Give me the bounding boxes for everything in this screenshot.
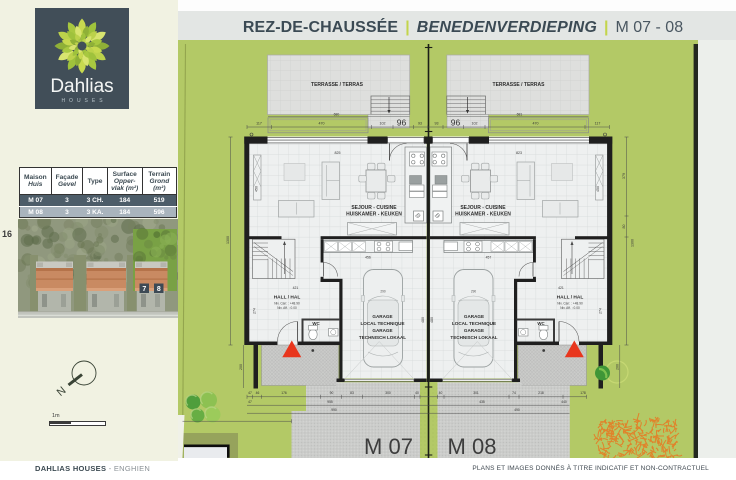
svg-text:HUISKAMER - KEUKEN: HUISKAMER - KEUKEN (455, 212, 511, 218)
svg-text:SEJOUR - CUISINE: SEJOUR - CUISINE (460, 205, 506, 211)
svg-text:456: 456 (365, 255, 371, 259)
svg-text:83: 83 (350, 391, 354, 395)
svg-text:290: 290 (471, 290, 477, 294)
svg-text:96: 96 (451, 118, 461, 128)
svg-text:GARAGE: GARAGE (372, 314, 392, 319)
svg-text:176: 176 (281, 391, 287, 395)
svg-text:40: 40 (415, 391, 419, 395)
svg-text:435: 435 (479, 400, 485, 404)
svg-text:490: 490 (514, 408, 520, 412)
svg-text:96: 96 (397, 118, 407, 128)
svg-text:990: 990 (331, 408, 337, 412)
svg-text:480: 480 (430, 317, 434, 323)
svg-text:379: 379 (622, 173, 626, 179)
svg-text:440: 440 (561, 400, 567, 404)
svg-text:681: 681 (517, 112, 523, 116)
svg-text:Niv. Aff. : 0.00: Niv. Aff. : 0.00 (560, 306, 580, 310)
svg-text:90: 90 (330, 391, 334, 395)
svg-text:301: 301 (473, 391, 479, 395)
svg-text:1300: 1300 (226, 236, 230, 244)
svg-text:TERRASSE / TERRAS: TERRASSE / TERRAS (311, 82, 364, 88)
svg-text:47: 47 (248, 391, 252, 395)
svg-text:47: 47 (248, 400, 252, 404)
svg-text:450: 450 (596, 186, 600, 192)
svg-text:470: 470 (319, 122, 325, 126)
svg-text:Niv. Aff. : 0.00: Niv. Aff. : 0.00 (277, 306, 297, 310)
svg-text:457: 457 (486, 255, 492, 259)
svg-text:470: 470 (533, 122, 539, 126)
svg-text:200: 200 (616, 364, 620, 370)
svg-text:218: 218 (538, 391, 544, 395)
svg-text:102: 102 (380, 122, 386, 126)
svg-text:300: 300 (385, 391, 391, 395)
svg-text:GARAGE: GARAGE (464, 328, 484, 333)
svg-text:LOCAL TECHNIQUE: LOCAL TECHNIQUE (452, 321, 496, 326)
svg-text:274: 274 (252, 308, 256, 314)
svg-text:WC: WC (312, 321, 320, 326)
svg-text:93: 93 (435, 122, 439, 126)
svg-text:WC: WC (537, 321, 545, 326)
svg-text:HALL / HAL: HALL / HAL (557, 295, 584, 301)
svg-text:421: 421 (558, 286, 564, 290)
svg-text:680: 680 (334, 112, 340, 116)
svg-text:N: N (55, 385, 69, 399)
svg-text:102: 102 (472, 122, 478, 126)
svg-text:M 07: M 07 (364, 434, 413, 459)
svg-text:80: 80 (622, 225, 626, 229)
svg-text:274: 274 (599, 308, 603, 314)
svg-text:200: 200 (239, 364, 243, 370)
svg-text:8: 8 (157, 286, 161, 293)
svg-text:HUISKAMER - KEUKEN: HUISKAMER - KEUKEN (346, 212, 402, 218)
svg-text:M 08: M 08 (448, 434, 497, 459)
svg-text:93: 93 (418, 122, 422, 126)
svg-text:74: 74 (512, 391, 516, 395)
svg-text:480: 480 (421, 317, 425, 323)
svg-text:Niv. Carr. : +48.90: Niv. Carr. : +48.90 (274, 302, 300, 306)
svg-text:7: 7 (142, 286, 146, 293)
svg-text:GARAGE: GARAGE (372, 328, 392, 333)
svg-text:825: 825 (335, 151, 341, 155)
svg-text:TERRASSE / TERRAS: TERRASSE / TERRAS (493, 82, 546, 88)
svg-text:LOCAL TECHNIQUE: LOCAL TECHNIQUE (360, 321, 404, 326)
svg-text:46: 46 (256, 391, 260, 395)
svg-text:TECHNISCH LOKAAL: TECHNISCH LOKAAL (450, 335, 497, 340)
svg-text:HALL / HAL: HALL / HAL (274, 295, 301, 301)
svg-text:40: 40 (439, 391, 443, 395)
svg-text:955: 955 (327, 400, 333, 404)
svg-text:421: 421 (293, 286, 299, 290)
svg-text:290: 290 (380, 290, 386, 294)
svg-text:GARAGE: GARAGE (464, 314, 484, 319)
svg-text:178: 178 (580, 391, 586, 395)
svg-text:823: 823 (516, 151, 522, 155)
svg-text:117: 117 (595, 122, 601, 126)
svg-text:Niv. Carr. : +48.90: Niv. Carr. : +48.90 (557, 302, 583, 306)
svg-text:1300: 1300 (631, 239, 635, 247)
svg-text:TECHNISCH LOKAAL: TECHNISCH LOKAAL (359, 335, 406, 340)
svg-text:117: 117 (256, 122, 262, 126)
svg-text:SEJOUR - CUISINE: SEJOUR - CUISINE (351, 205, 397, 211)
svg-text:450: 450 (255, 186, 259, 192)
